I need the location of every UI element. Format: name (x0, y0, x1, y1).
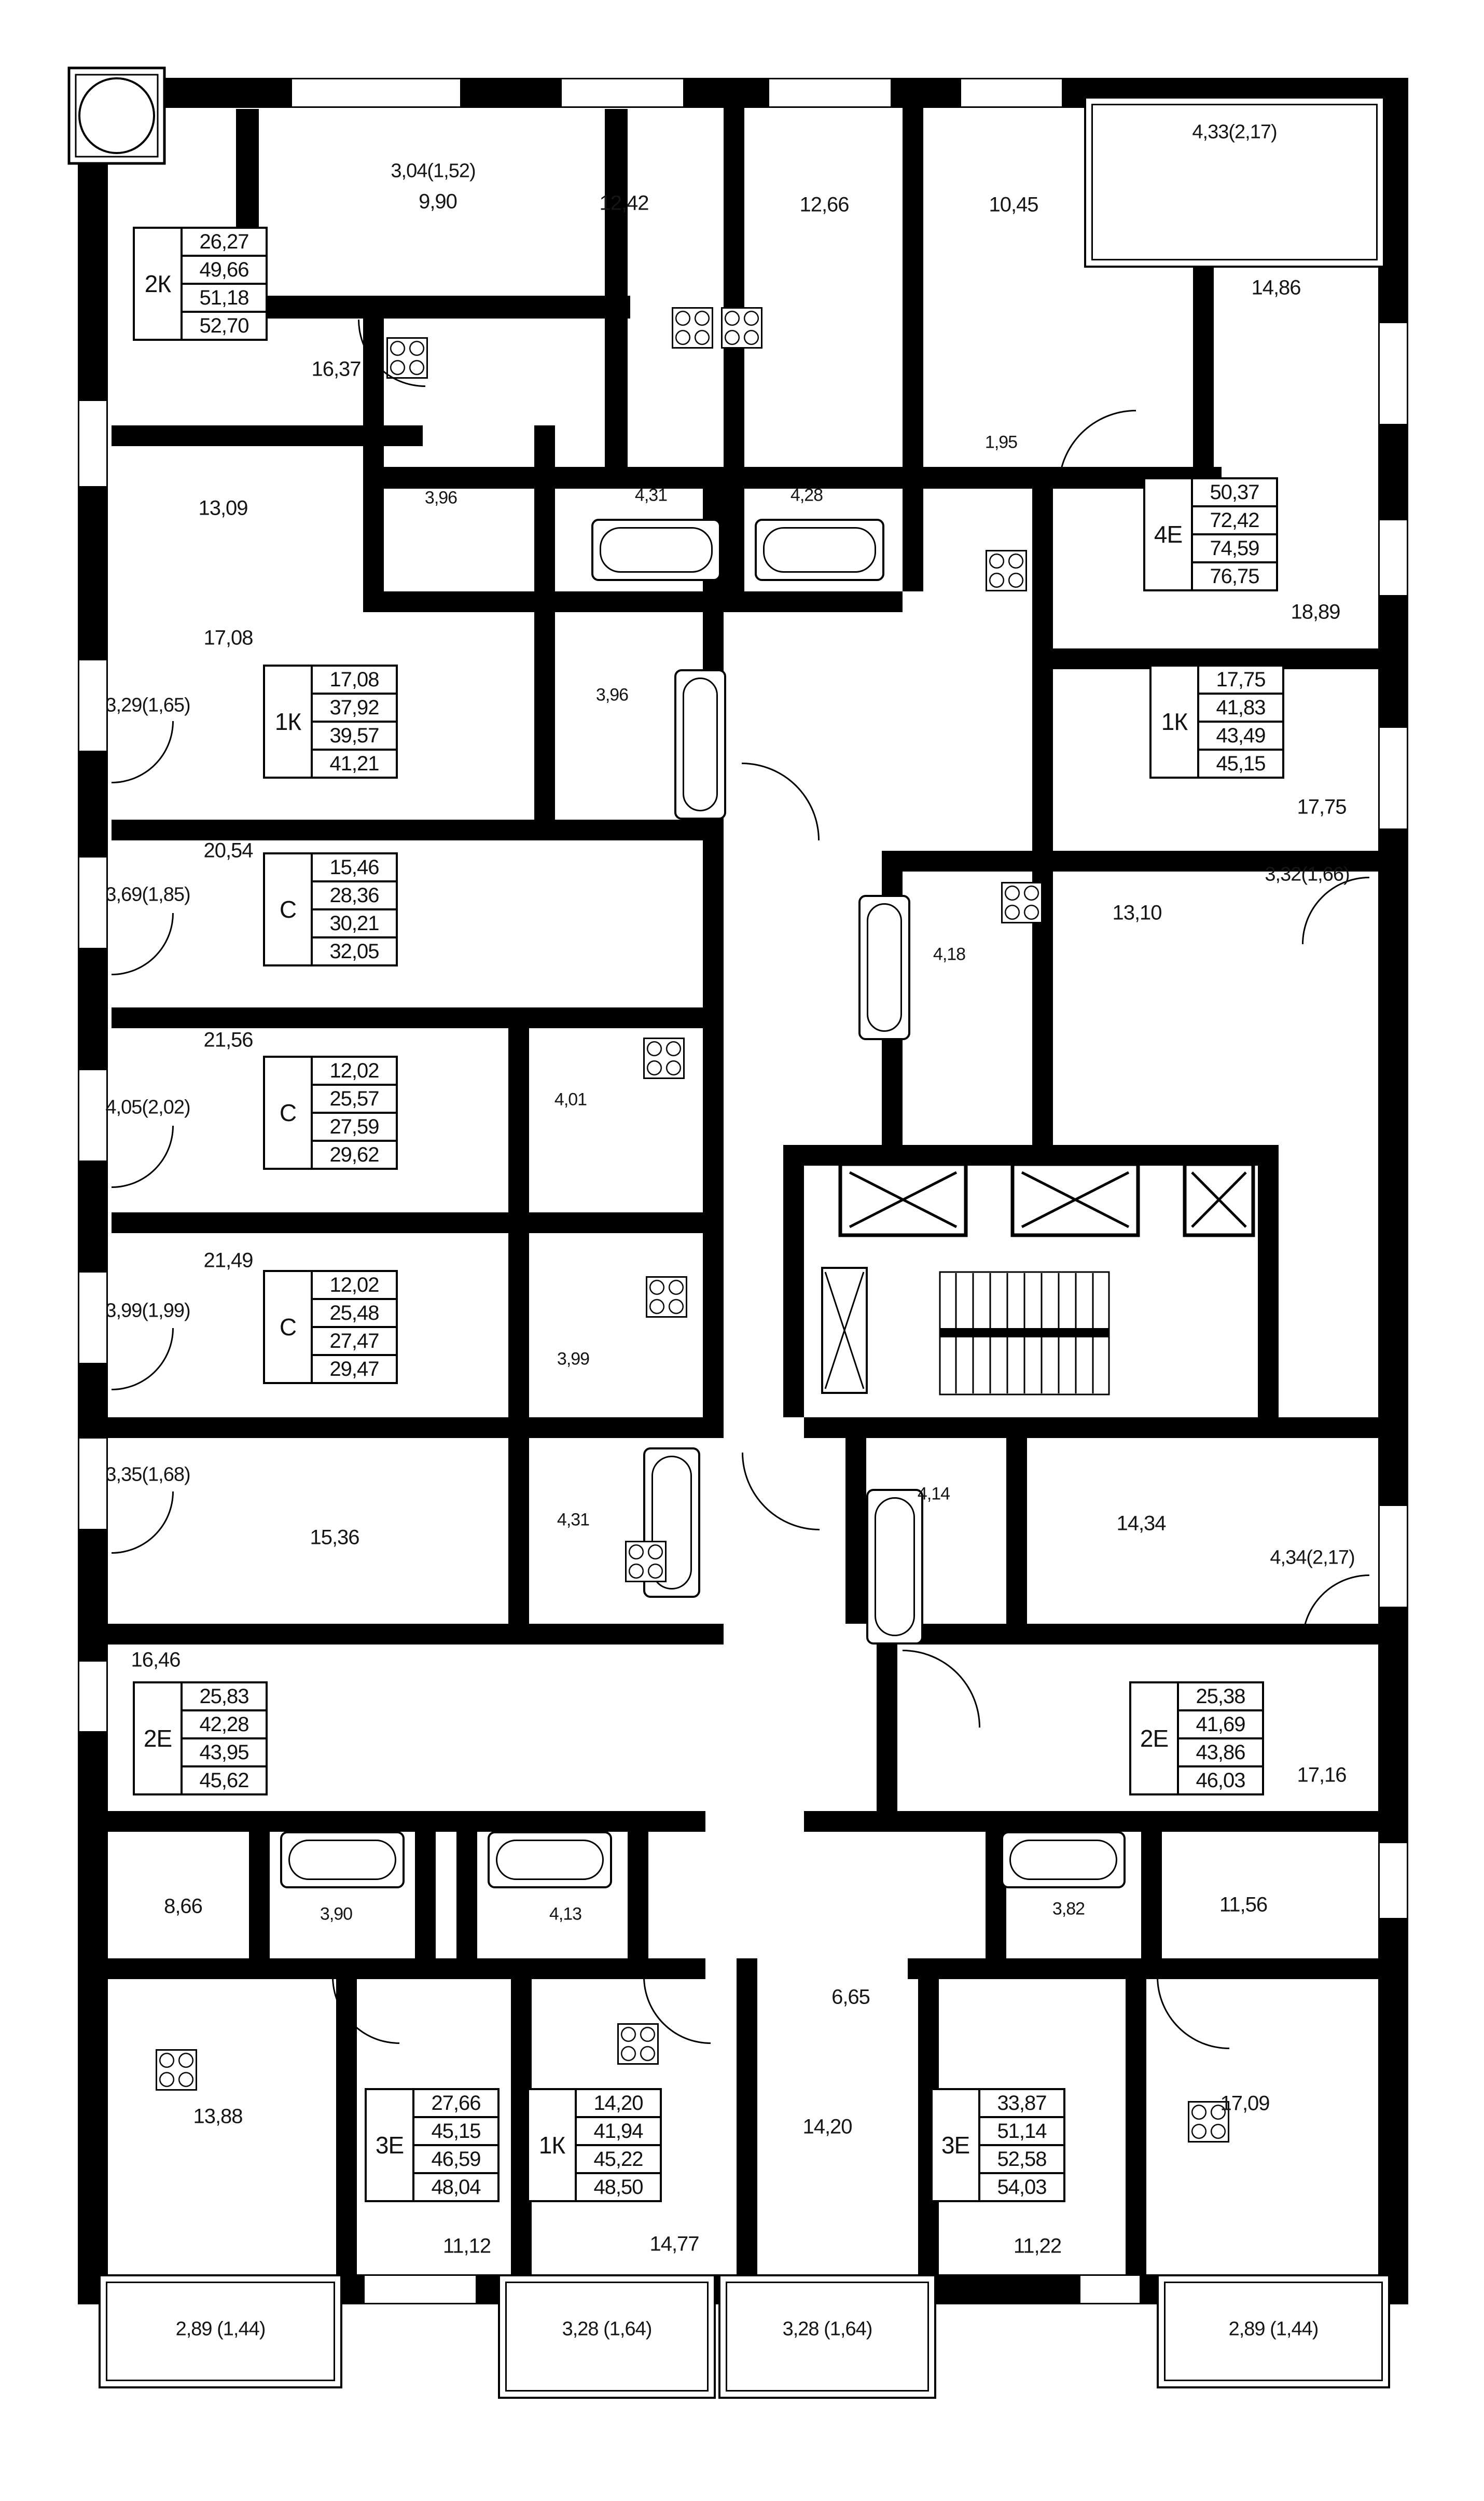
floor-plan: 2К 26,27 49,66 51,18 52,70 4Е 50,37 72,4… (0, 0, 1484, 2501)
window (363, 2274, 477, 2304)
area-value: 33,87 (980, 2090, 1063, 2118)
bathtub-icon (866, 1489, 923, 1645)
area-value: 28,36 (313, 882, 396, 910)
apartment-table-2e-left: 2Е 25,83 42,28 43,95 45,62 (133, 1681, 268, 1795)
apartment-type: 4Е (1145, 479, 1193, 589)
apartment-table-c3: С 12,02 25,48 27,47 29,47 (263, 1270, 398, 1384)
area-value: 12,02 (313, 1058, 396, 1086)
stove-icon (672, 307, 713, 349)
window (78, 1660, 108, 1733)
bathroom-label: 4,31 (635, 486, 667, 506)
wall (628, 1811, 648, 1958)
door-arc-icon (112, 1328, 174, 1390)
wall (1141, 1811, 1162, 1958)
bathroom-label: 3,82 (1052, 1899, 1085, 1919)
window (1378, 322, 1408, 425)
wall (508, 1007, 529, 1624)
area-value: 29,47 (313, 1356, 396, 1382)
balcony-label: 3,04(1,52) (391, 160, 475, 183)
area-value: 52,58 (980, 2146, 1063, 2174)
room-label: 20,54 (203, 839, 253, 863)
window (290, 78, 462, 108)
wall (78, 1417, 724, 1438)
area-value: 72,42 (1193, 507, 1276, 535)
apartment-type: 2Е (135, 1683, 183, 1793)
bathtub-icon (591, 519, 721, 581)
balcony-label: 3,69(1,85) (105, 884, 190, 906)
stove-icon (625, 1541, 667, 1582)
window (78, 1271, 108, 1364)
door-arc-icon (112, 913, 174, 975)
wall (112, 1212, 724, 1233)
stove-icon (1001, 882, 1043, 923)
room-label: 14,34 (1116, 1512, 1166, 1536)
door-arc-icon (1302, 877, 1369, 944)
wall (783, 1145, 804, 1417)
area-value: 27,66 (414, 2090, 497, 2118)
vent-logo-icon (67, 66, 166, 165)
balcony-label: 3,28 (1,64) (783, 2318, 872, 2341)
apartment-table-2k: 2К 26,27 49,66 51,18 52,70 (133, 227, 268, 341)
shaft-icon (821, 1267, 868, 1394)
stove-icon (721, 307, 762, 349)
bathroom-label: 3,90 (320, 1904, 352, 1925)
door-arc-icon (112, 721, 174, 783)
area-value: 39,57 (313, 723, 396, 751)
door-arc-icon (742, 763, 820, 840)
bathroom-label: 4,28 (790, 486, 823, 506)
area-value: 25,83 (183, 1683, 266, 1711)
wall (804, 1417, 1380, 1438)
bathtub-icon (858, 895, 910, 1040)
door-arc-icon (112, 1491, 174, 1554)
apartment-table-2e-right: 2Е 25,38 41,69 43,86 46,03 (1129, 1681, 1264, 1795)
apartment-type: 2К (135, 229, 183, 339)
area-value: 26,27 (183, 229, 266, 257)
area-value: 46,59 (414, 2146, 497, 2174)
area-value: 45,15 (414, 2118, 497, 2146)
balcony-label: 2,89 (1,44) (176, 2318, 266, 2341)
bathroom-label: 4,14 (918, 1484, 950, 1504)
bathroom-label: 3,96 (596, 685, 628, 706)
apartment-type: 1К (265, 667, 313, 777)
room-label: 11,22 (1014, 2235, 1061, 2258)
door-arc-icon (1302, 1574, 1369, 1642)
bathtub-icon (488, 1831, 612, 1888)
window (78, 399, 108, 488)
balcony-label: 4,33(2,17) (1192, 121, 1277, 144)
window (78, 659, 108, 752)
area-value: 12,02 (313, 1272, 396, 1300)
area-value: 45,15 (1199, 751, 1282, 777)
elevator-icon (1010, 1162, 1140, 1237)
room-label: 12,42 (599, 192, 648, 215)
wall (737, 1958, 757, 2274)
apartment-type: С (265, 1272, 313, 1382)
wall (703, 467, 724, 1420)
bathroom-label: 1,95 (985, 433, 1017, 453)
area-value: 27,59 (313, 1114, 396, 1142)
apartment-type: 3Е (367, 2090, 414, 2200)
apartment-table-1k-left: 1К 17,08 37,92 39,57 41,21 (263, 665, 398, 779)
wall (249, 1811, 270, 1958)
room-label: 12,66 (799, 194, 849, 217)
wall (804, 1811, 1380, 1832)
room-label: 16,46 (131, 1649, 180, 1672)
area-value: 48,50 (577, 2174, 660, 2200)
room-label: 11,12 (443, 2235, 491, 2258)
area-value: 45,22 (577, 2146, 660, 2174)
area-value: 17,75 (1199, 667, 1282, 695)
apartment-type: 3Е (933, 2090, 980, 2200)
apartment-table-3e-left: 3Е 27,66 45,15 46,59 48,04 (365, 2088, 500, 2202)
balcony-label: 3,28 (1,64) (562, 2318, 652, 2341)
area-value: 52,70 (183, 313, 266, 339)
room-label: 13,09 (198, 497, 247, 520)
apartment-type: 2Е (1131, 1683, 1179, 1793)
room-label: 16,37 (311, 358, 360, 381)
apartment-type: С (265, 854, 313, 964)
wall (415, 1811, 436, 1958)
wall (1126, 1958, 1146, 2274)
room-label: 8,66 (164, 1895, 202, 1918)
wall (112, 820, 724, 840)
wall (78, 1811, 705, 1832)
bathroom-label: 4,18 (933, 945, 965, 965)
apartment-table-1k-bottom: 1К 14,20 41,94 45,22 48,50 (527, 2088, 662, 2202)
balcony-label: 3,99(1,99) (105, 1300, 190, 1322)
wall (903, 78, 923, 591)
room-label: 21,49 (203, 1249, 253, 1273)
area-value: 74,59 (1193, 535, 1276, 563)
area-value: 29,62 (313, 1142, 396, 1168)
wall (534, 425, 555, 820)
window (768, 78, 892, 108)
room-label: 15,36 (310, 1526, 359, 1550)
area-value: 41,94 (577, 2118, 660, 2146)
window (1378, 1842, 1408, 1919)
window (78, 856, 108, 949)
room-label: 17,08 (203, 627, 253, 650)
area-value: 46,03 (1179, 1767, 1262, 1793)
bathroom-label: 4,13 (549, 1904, 581, 1925)
elevator-icon (1183, 1162, 1255, 1237)
area-value: 25,48 (313, 1300, 396, 1328)
balcony-label: 3,32(1,66) (1265, 864, 1349, 886)
window (78, 1069, 108, 1162)
apartment-type: С (265, 1058, 313, 1168)
wall (605, 109, 628, 467)
area-value: 27,47 (313, 1328, 396, 1356)
room-label: 13,10 (1112, 902, 1161, 925)
bathtub-icon (1001, 1831, 1126, 1888)
door-arc-icon (742, 1453, 820, 1530)
area-value: 37,92 (313, 695, 396, 723)
balcony-label: 2,89 (1,44) (1229, 2318, 1319, 2341)
window (1378, 1504, 1408, 1608)
window (960, 78, 1063, 108)
room-label: 9,90 (419, 190, 457, 214)
balcony-label: 3,35(1,68) (105, 1464, 190, 1486)
area-value: 14,20 (577, 2090, 660, 2118)
door-arc-icon (112, 1126, 174, 1188)
area-value: 41,83 (1199, 695, 1282, 723)
apartment-table-1k-right: 1К 17,75 41,83 43,49 45,15 (1149, 665, 1284, 779)
bathroom-label: 4,01 (554, 1090, 587, 1110)
room-label: 17,75 (1297, 796, 1346, 819)
wall (877, 1624, 897, 1811)
bathtub-icon (755, 519, 884, 581)
area-value: 45,62 (183, 1767, 266, 1793)
room-label: 6,65 (831, 1986, 870, 2009)
area-value: 43,95 (183, 1739, 266, 1767)
wall (363, 591, 903, 612)
area-value: 15,46 (313, 854, 396, 882)
area-value: 30,21 (313, 910, 396, 938)
area-value: 43,86 (1179, 1739, 1262, 1767)
door-arc-icon (903, 1650, 980, 1728)
apartment-type: 1К (1152, 667, 1199, 777)
wall (456, 1811, 477, 1958)
window (560, 78, 685, 108)
bathtub-icon (280, 1831, 405, 1888)
room-label: 21,56 (203, 1029, 253, 1052)
room-label: 17,09 (1220, 2092, 1269, 2116)
window (1378, 519, 1408, 597)
room-label: 14,77 (649, 2233, 699, 2256)
balcony-label: 4,05(2,02) (105, 1097, 190, 1119)
room-label: 14,20 (802, 2116, 852, 2139)
stove-icon (986, 550, 1027, 591)
area-value: 48,04 (414, 2174, 497, 2200)
room-label: 18,89 (1291, 601, 1340, 624)
area-value: 51,18 (183, 285, 266, 313)
area-value: 25,57 (313, 1086, 396, 1114)
room-label: 13,88 (193, 2105, 242, 2129)
wall (1006, 1438, 1027, 1624)
elevator-icon (838, 1162, 968, 1237)
area-value: 51,14 (980, 2118, 1063, 2146)
balcony-label: 4,34(2,17) (1270, 1547, 1354, 1569)
area-value: 32,05 (313, 938, 396, 964)
window (1378, 726, 1408, 830)
wall (112, 1007, 724, 1028)
stove-icon (617, 2023, 659, 2065)
area-value: 43,49 (1199, 723, 1282, 751)
area-value: 49,66 (183, 257, 266, 285)
stairs-icon (939, 1271, 1110, 1395)
bathtub-icon (674, 669, 726, 820)
wall (236, 296, 630, 319)
area-value: 41,69 (1179, 1711, 1262, 1739)
wall (1032, 467, 1053, 1145)
bathroom-label: 3,96 (425, 488, 457, 508)
area-value: 42,28 (183, 1711, 266, 1739)
room-label: 17,16 (1297, 1764, 1346, 1787)
door-arc-icon (1157, 1977, 1229, 2049)
window (78, 1437, 108, 1530)
bathroom-label: 3,99 (557, 1349, 589, 1370)
area-value: 54,03 (980, 2174, 1063, 2200)
wall (78, 1624, 724, 1645)
apartment-table-c1: С 15,46 28,36 30,21 32,05 (263, 852, 398, 966)
apartment-table-3e-right: 3Е 33,87 51,14 52,58 54,03 (931, 2088, 1065, 2202)
area-value: 41,21 (313, 751, 396, 777)
area-value: 25,38 (1179, 1683, 1262, 1711)
apartment-type: 1К (529, 2090, 577, 2200)
stove-icon (156, 2049, 197, 2091)
balcony-label: 3,29(1,65) (105, 695, 190, 717)
room-label: 11,56 (1219, 1894, 1267, 1917)
area-value: 76,75 (1193, 563, 1276, 589)
area-value: 50,37 (1193, 479, 1276, 507)
bathroom-label: 4,31 (557, 1510, 589, 1530)
wall (845, 1438, 866, 1624)
apartment-table-c2: С 12,02 25,57 27,59 29,62 (263, 1056, 398, 1170)
room-label: 14,86 (1251, 277, 1300, 300)
room-label: 10,45 (989, 194, 1038, 217)
stove-icon (643, 1038, 685, 1079)
area-value: 17,08 (313, 667, 396, 695)
apartment-table-4e: 4Е 50,37 72,42 74,59 76,75 (1143, 477, 1278, 591)
wall (1258, 1145, 1279, 1438)
window (1079, 2274, 1141, 2304)
stove-icon (646, 1276, 687, 1318)
wall (78, 1958, 705, 1979)
door-arc-icon (1058, 410, 1136, 488)
